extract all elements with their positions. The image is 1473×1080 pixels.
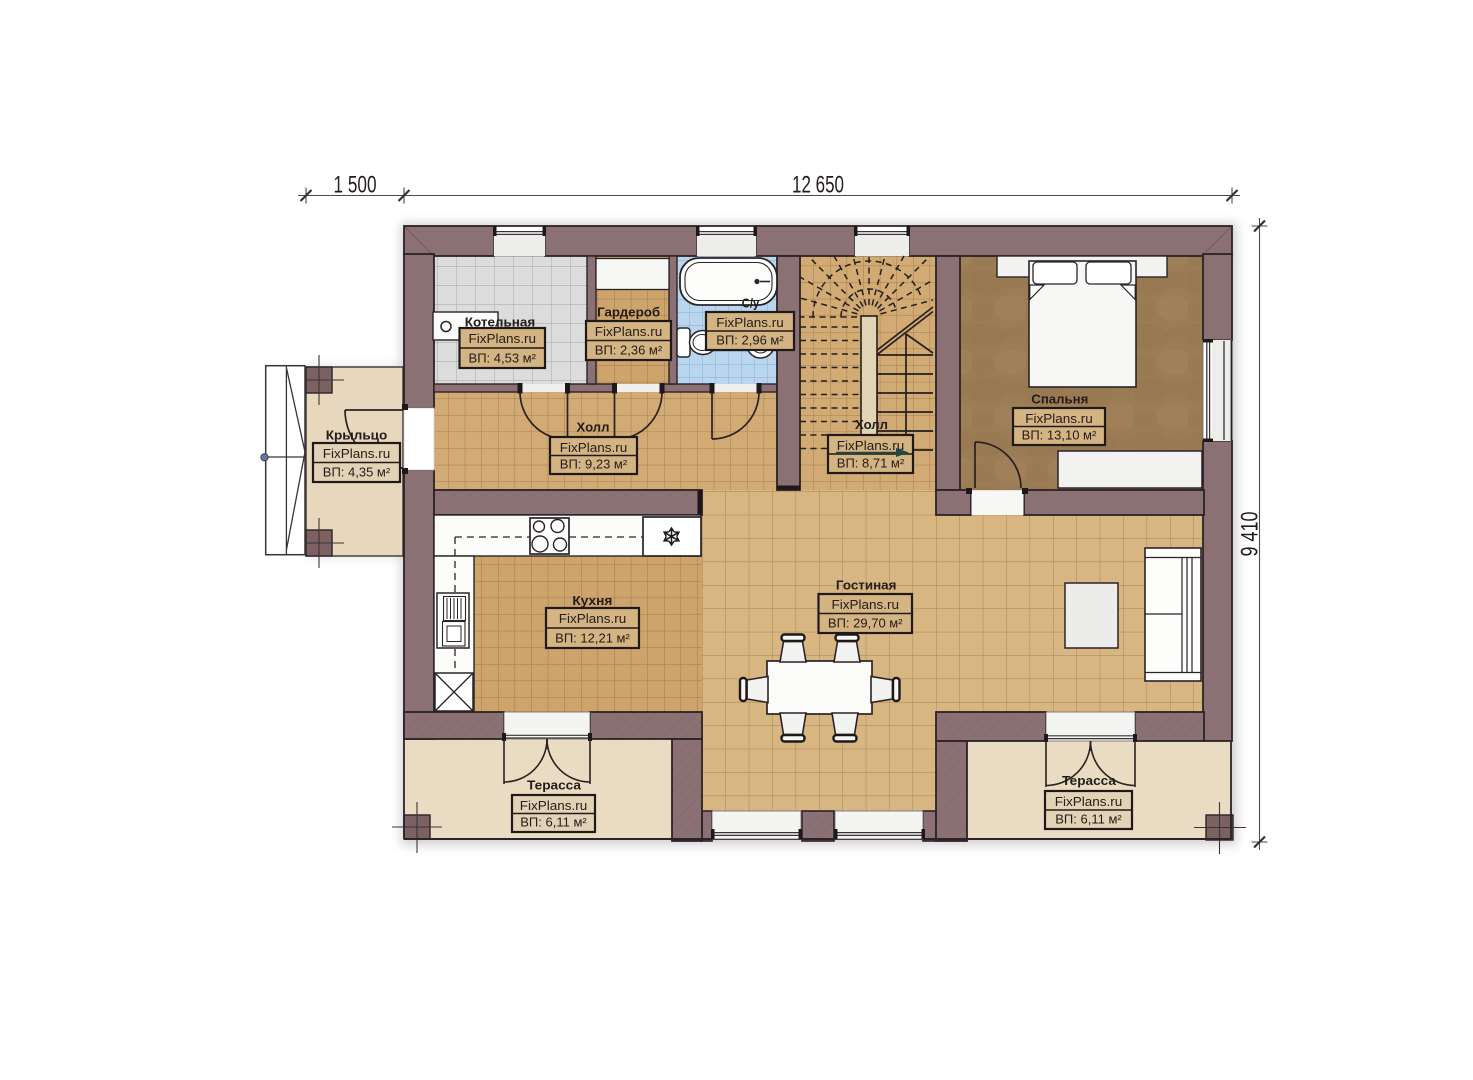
svg-text:Холл: Холл bbox=[577, 419, 610, 434]
svg-text:FixPlans.ru: FixPlans.ru bbox=[559, 611, 627, 626]
svg-text:FixPlans.ru: FixPlans.ru bbox=[560, 440, 628, 455]
svg-text:Гостиная: Гостиная bbox=[836, 578, 897, 593]
svg-text:ВП: 6,11 м²: ВП: 6,11 м² bbox=[1055, 812, 1122, 827]
svg-text:ВП: 8,71 м²: ВП: 8,71 м² bbox=[837, 456, 905, 471]
svg-text:FixPlans.ru: FixPlans.ru bbox=[469, 331, 537, 346]
svg-text:Крыльцо: Крыльцо bbox=[326, 428, 388, 443]
svg-text:FixPlans.ru: FixPlans.ru bbox=[1055, 794, 1123, 809]
svg-text:ВП: 12,21 м²: ВП: 12,21 м² bbox=[555, 631, 630, 646]
svg-text:Кухня: Кухня bbox=[572, 593, 612, 608]
svg-text:ВП: 4,53 м²: ВП: 4,53 м² bbox=[469, 351, 537, 366]
svg-text:FixPlans.ru: FixPlans.ru bbox=[832, 597, 900, 612]
svg-text:Спальня: Спальня bbox=[1031, 392, 1088, 407]
svg-text:FixPlans.ru: FixPlans.ru bbox=[520, 798, 588, 813]
svg-text:ВП: 2,36 м²: ВП: 2,36 м² bbox=[595, 343, 663, 358]
svg-text:Холл: Холл bbox=[855, 417, 888, 432]
svg-text:ВП: 4,35 м²: ВП: 4,35 м² bbox=[323, 465, 391, 480]
svg-text:ВП: 13,10 м²: ВП: 13,10 м² bbox=[1022, 428, 1097, 443]
svg-text:ВП: 2,96 м²: ВП: 2,96 м² bbox=[716, 333, 784, 348]
svg-text:Терасса: Терасса bbox=[1062, 773, 1117, 788]
svg-text:ВП: 6,11 м²: ВП: 6,11 м² bbox=[520, 815, 587, 830]
svg-text:ВП: 9,23 м²: ВП: 9,23 м² bbox=[560, 457, 628, 472]
svg-text:С/у: С/у bbox=[742, 296, 760, 311]
svg-text:Гардероб: Гардероб bbox=[597, 305, 660, 320]
svg-text:Терасса: Терасса bbox=[527, 778, 582, 793]
svg-text:FixPlans.ru: FixPlans.ru bbox=[1025, 411, 1093, 426]
svg-text:ВП: 29,70 м²: ВП: 29,70 м² bbox=[828, 616, 903, 631]
svg-text:FixPlans.ru: FixPlans.ru bbox=[716, 315, 784, 330]
svg-text:12 650: 12 650 bbox=[792, 172, 844, 199]
svg-text:FixPlans.ru: FixPlans.ru bbox=[323, 446, 391, 461]
svg-text:FixPlans.ru: FixPlans.ru bbox=[595, 324, 663, 339]
svg-text:FixPlans.ru: FixPlans.ru bbox=[837, 438, 905, 453]
svg-text:9 410: 9 410 bbox=[1237, 512, 1264, 557]
svg-text:1 500: 1 500 bbox=[334, 172, 377, 199]
